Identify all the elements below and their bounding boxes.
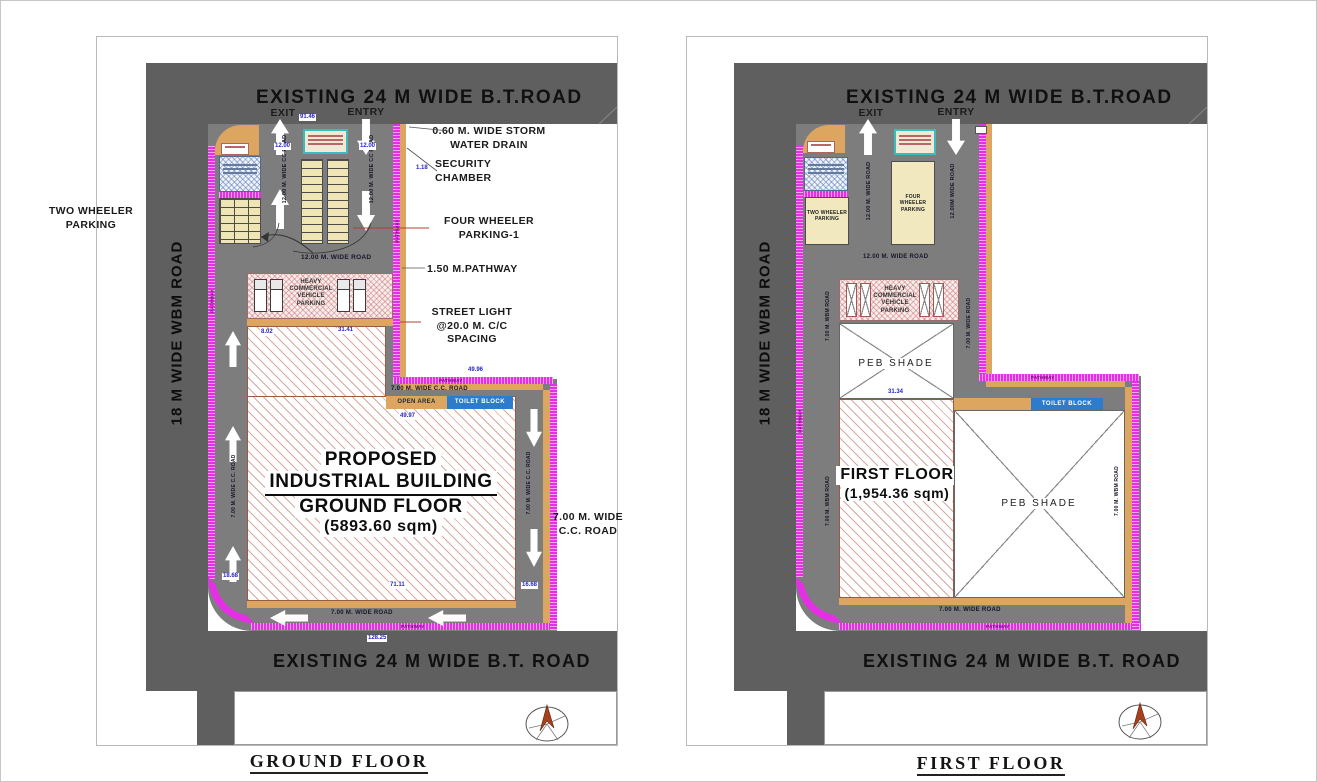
first-bottom-road-label: EXISTING 24 M WIDE B.T. ROAD: [863, 651, 1181, 672]
dim-128-25: 128.25: [367, 635, 387, 642]
truck-icon: [254, 279, 267, 312]
first-7wbm-left-label-2: 7.00 M. WBM ROAD: [825, 476, 831, 526]
ground-fwp-stalls-right: [327, 159, 349, 244]
dim-18-68: 18.68: [222, 573, 239, 580]
dim-71-11: 71.11: [389, 582, 406, 589]
first-building-south-wall: [839, 598, 1125, 605]
ground-security-cabin: [221, 143, 249, 155]
first-ac-box: [975, 126, 987, 134]
first-12v-right-label: 12.00M WIDE ROAD: [950, 163, 956, 218]
first-7-bottom-label: 7.00 M. WIDE ROAD: [939, 607, 1001, 613]
first-drain-strip-step: [986, 381, 1125, 387]
first-pathway-label-left: PATHWAY: [798, 409, 803, 433]
first-pathway-label-step: PATHWAY: [1031, 375, 1055, 380]
first-caption: FIRST FLOOR: [917, 753, 1066, 776]
building-line-2: INDUSTRIAL BUILDING: [265, 471, 496, 495]
ground-drain-strip-right: [400, 124, 406, 377]
first-hcv-label: HEAVY COMMERCIAL VEHICLE PARKING: [873, 286, 917, 315]
cone-icon: [919, 283, 930, 317]
dim-49-96: 49.96: [467, 367, 484, 374]
cone-icon: [933, 283, 944, 317]
ground-pathway-label-bottom: PATHWAY: [401, 624, 425, 629]
ground-caption: GROUND FLOOR: [250, 751, 429, 774]
ground-pathway-label-left: PATHWAY: [210, 289, 215, 313]
first-four-wheeler-label: FOUR WHEELER PARKING: [900, 194, 926, 213]
first-open-strip: [954, 398, 1031, 410]
first-four-wheeler-box: FOUR WHEELER PARKING: [891, 161, 935, 245]
ground-12h-road-label: 12.00 M. WIDE ROAD: [301, 254, 371, 261]
ann-two-wheeler: TWO WHEELER PARKING: [41, 205, 141, 232]
dim-91-46: 91.46: [299, 114, 316, 121]
ground-exit-label: EXIT: [263, 107, 303, 121]
first-12h-label: 12.00 M. WIDE ROAD: [863, 254, 928, 260]
first-top-road-label: EXISTING 24 M WIDE B.T.ROAD: [846, 87, 1173, 109]
ground-7cc-left-label: 7.00 M. WIDE C.C. ROAD: [231, 454, 237, 517]
first-drain-strip-lower-right: [1125, 387, 1132, 623]
ground-building-north-wall: [247, 319, 393, 326]
north-compass-icon: [524, 702, 570, 746]
first-floor-title: FIRST FLOOR (1,954.36 sqm): [833, 466, 961, 503]
site-plan-drawing: EXISTING 24 M WIDE B.T.ROAD EXISTING 24 …: [0, 0, 1317, 782]
ground-two-wheeler-stalls: [219, 198, 261, 244]
truck-icon: [270, 279, 283, 312]
first-peb-right-labelwrap: PEB SHADE: [989, 493, 1089, 511]
ground-caption-wrap: GROUND FLOOR: [239, 751, 439, 772]
ground-building-upper: [247, 326, 386, 398]
ann-pathway-150: 1.50 M.PATHWAY: [427, 263, 518, 277]
first-two-wheeler-label: TWO WHEELER PARKING: [807, 210, 847, 222]
ground-boundary-step: [393, 377, 553, 384]
ground-utility-box: [303, 129, 348, 154]
building-line-1: PROPOSED: [321, 449, 442, 471]
dim-16-68: 16.68: [521, 582, 538, 589]
first-two-wheeler-box: TWO WHEELER PARKING: [805, 197, 849, 245]
ground-boundary-left: [208, 146, 215, 579]
ann-four-wheeler: FOUR WHEELER PARKING-1: [429, 215, 549, 242]
first-pathway-label-bottom: PATHWAY: [986, 624, 1010, 629]
first-entry-label: ENTRY: [933, 106, 979, 120]
first-peb-top-label: PEB SHADE: [858, 358, 933, 369]
ann-storm-drain: 0.60 M. WIDE STORM WATER DRAIN: [421, 125, 557, 152]
first-7v-upper-label: 7.00 M. WIDE ROAD: [966, 298, 972, 349]
ground-toilet-block: TOILET BLOCK: [447, 396, 513, 409]
dim-12-00-a: 12.00: [274, 143, 291, 150]
dim-31-41: 31.41: [337, 327, 354, 334]
ground-ug-tank: [219, 156, 261, 192]
ground-hcv-label: HEAVY COMMERCIAL VEHICLE PARKING: [287, 279, 335, 308]
ground-top-road-label: EXISTING 24 M WIDE B.T.ROAD: [256, 87, 583, 109]
first-bottom-step: [787, 691, 824, 745]
first-boundary-step: [979, 374, 1139, 381]
ground-pathway-label-step: PATHWAY: [439, 378, 463, 383]
ann-cc-road: 7.00 M. WIDE C.C. ROAD: [549, 511, 627, 538]
ground-building-title: PROPOSED INDUSTRIAL BUILDING GROUND FLOO…: [259, 449, 503, 537]
first-boundary-lower-right: [1132, 381, 1139, 630]
dim-1-18: 1.18: [415, 165, 429, 172]
ground-drain-strip-lower-right: [543, 390, 550, 623]
dim-49-97: 49.97: [399, 413, 416, 420]
dim-8-02: 8.02: [260, 329, 274, 336]
first-drain-strip-right: [986, 124, 992, 374]
ground-7-bottom-label: 7.00 M. WIDE ROAD: [331, 610, 393, 616]
ground-left-road-label: 18 M WIDE WBM ROAD: [169, 241, 186, 426]
cone-icon: [860, 283, 871, 317]
dim-31-34: 31.34: [887, 389, 904, 396]
ground-open-area: OPEN AREA: [386, 396, 447, 409]
first-caption-wrap: FIRST FLOOR: [891, 753, 1091, 774]
first-floor-line-2: (1,954.36 sqm): [841, 485, 954, 502]
first-ug-tank: [804, 157, 848, 191]
ground-entry-label: ENTRY: [343, 106, 389, 120]
ground-boundary-upper-right: [393, 124, 400, 379]
first-7wbm-right-label: 7.00 M. WBM ROAD: [1114, 466, 1120, 516]
first-boundary-upper-right: [979, 124, 986, 376]
truck-icon: [337, 279, 350, 312]
first-floor-line-1: FIRST FLOOR: [836, 466, 957, 485]
ground-7cc-road-label-h: 7.00 M. WIDE C.C. ROAD: [391, 386, 468, 392]
first-toilet-block: TOILET BLOCK: [1031, 398, 1103, 410]
first-peb-right-label: PEB SHADE: [1001, 498, 1076, 509]
first-12v-left-label: 12.00 M. WIDE ROAD: [866, 162, 872, 221]
first-security-cabin: [807, 141, 835, 153]
building-line-3: GROUND FLOOR: [295, 496, 466, 518]
first-boundary-left: [796, 146, 803, 577]
ground-building-south-wall: [247, 601, 516, 608]
dim-12-00-b: 12.00: [359, 143, 376, 150]
truck-icon: [353, 279, 366, 312]
north-compass-icon: [1117, 700, 1163, 744]
first-exit-label: EXIT: [851, 107, 891, 121]
first-utility-box: [894, 129, 936, 155]
ground-pathway-label-right-upper: PATHWAY: [395, 219, 400, 243]
ann-street-light: STREET LIGHT @20.0 M. C/C SPACING: [419, 306, 525, 347]
ground-fwp-stalls-left: [301, 159, 323, 244]
building-line-4: (5893.60 sqm): [320, 518, 442, 537]
ground-bottom-road-label: EXISTING 24 M WIDE B.T. ROAD: [273, 651, 591, 672]
first-left-road-label: 18 M WIDE WBM ROAD: [757, 241, 774, 426]
ground-bottom-step: [197, 691, 234, 745]
ground-boundary-lower-right: [550, 384, 557, 630]
first-7wbm-left-label: 7.00 M. WBM ROAD: [825, 291, 831, 341]
ground-7cc-right-label: 7.00 M. WIDE C.C. ROAD: [526, 451, 532, 514]
first-peb-top-labelwrap: PEB SHADE: [846, 353, 946, 371]
cone-icon: [846, 283, 857, 317]
ann-security-chamber: SECURITY CHAMBER: [435, 158, 513, 185]
